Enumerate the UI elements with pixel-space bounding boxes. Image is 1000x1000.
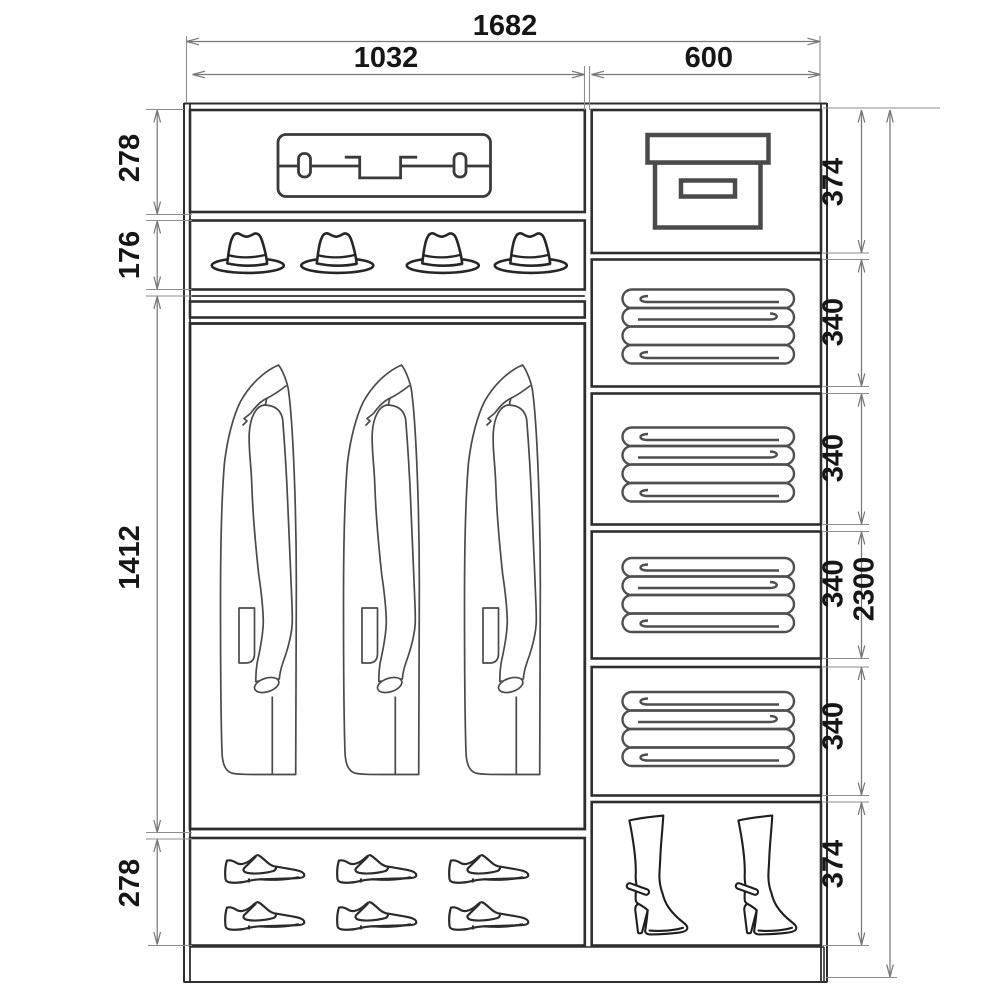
svg-text:340: 340 [818,702,850,750]
svg-text:374: 374 [818,840,850,888]
svg-text:1032: 1032 [354,42,419,74]
svg-text:340: 340 [818,298,850,346]
svg-text:278: 278 [114,859,146,907]
svg-text:374: 374 [818,158,850,206]
svg-text:176: 176 [114,231,146,279]
svg-text:340: 340 [818,434,850,482]
svg-text:600: 600 [685,42,733,74]
svg-text:1682: 1682 [473,10,538,42]
svg-text:340: 340 [818,559,850,607]
svg-text:278: 278 [114,134,146,182]
svg-text:2300: 2300 [849,557,881,622]
svg-text:1412: 1412 [114,525,146,590]
